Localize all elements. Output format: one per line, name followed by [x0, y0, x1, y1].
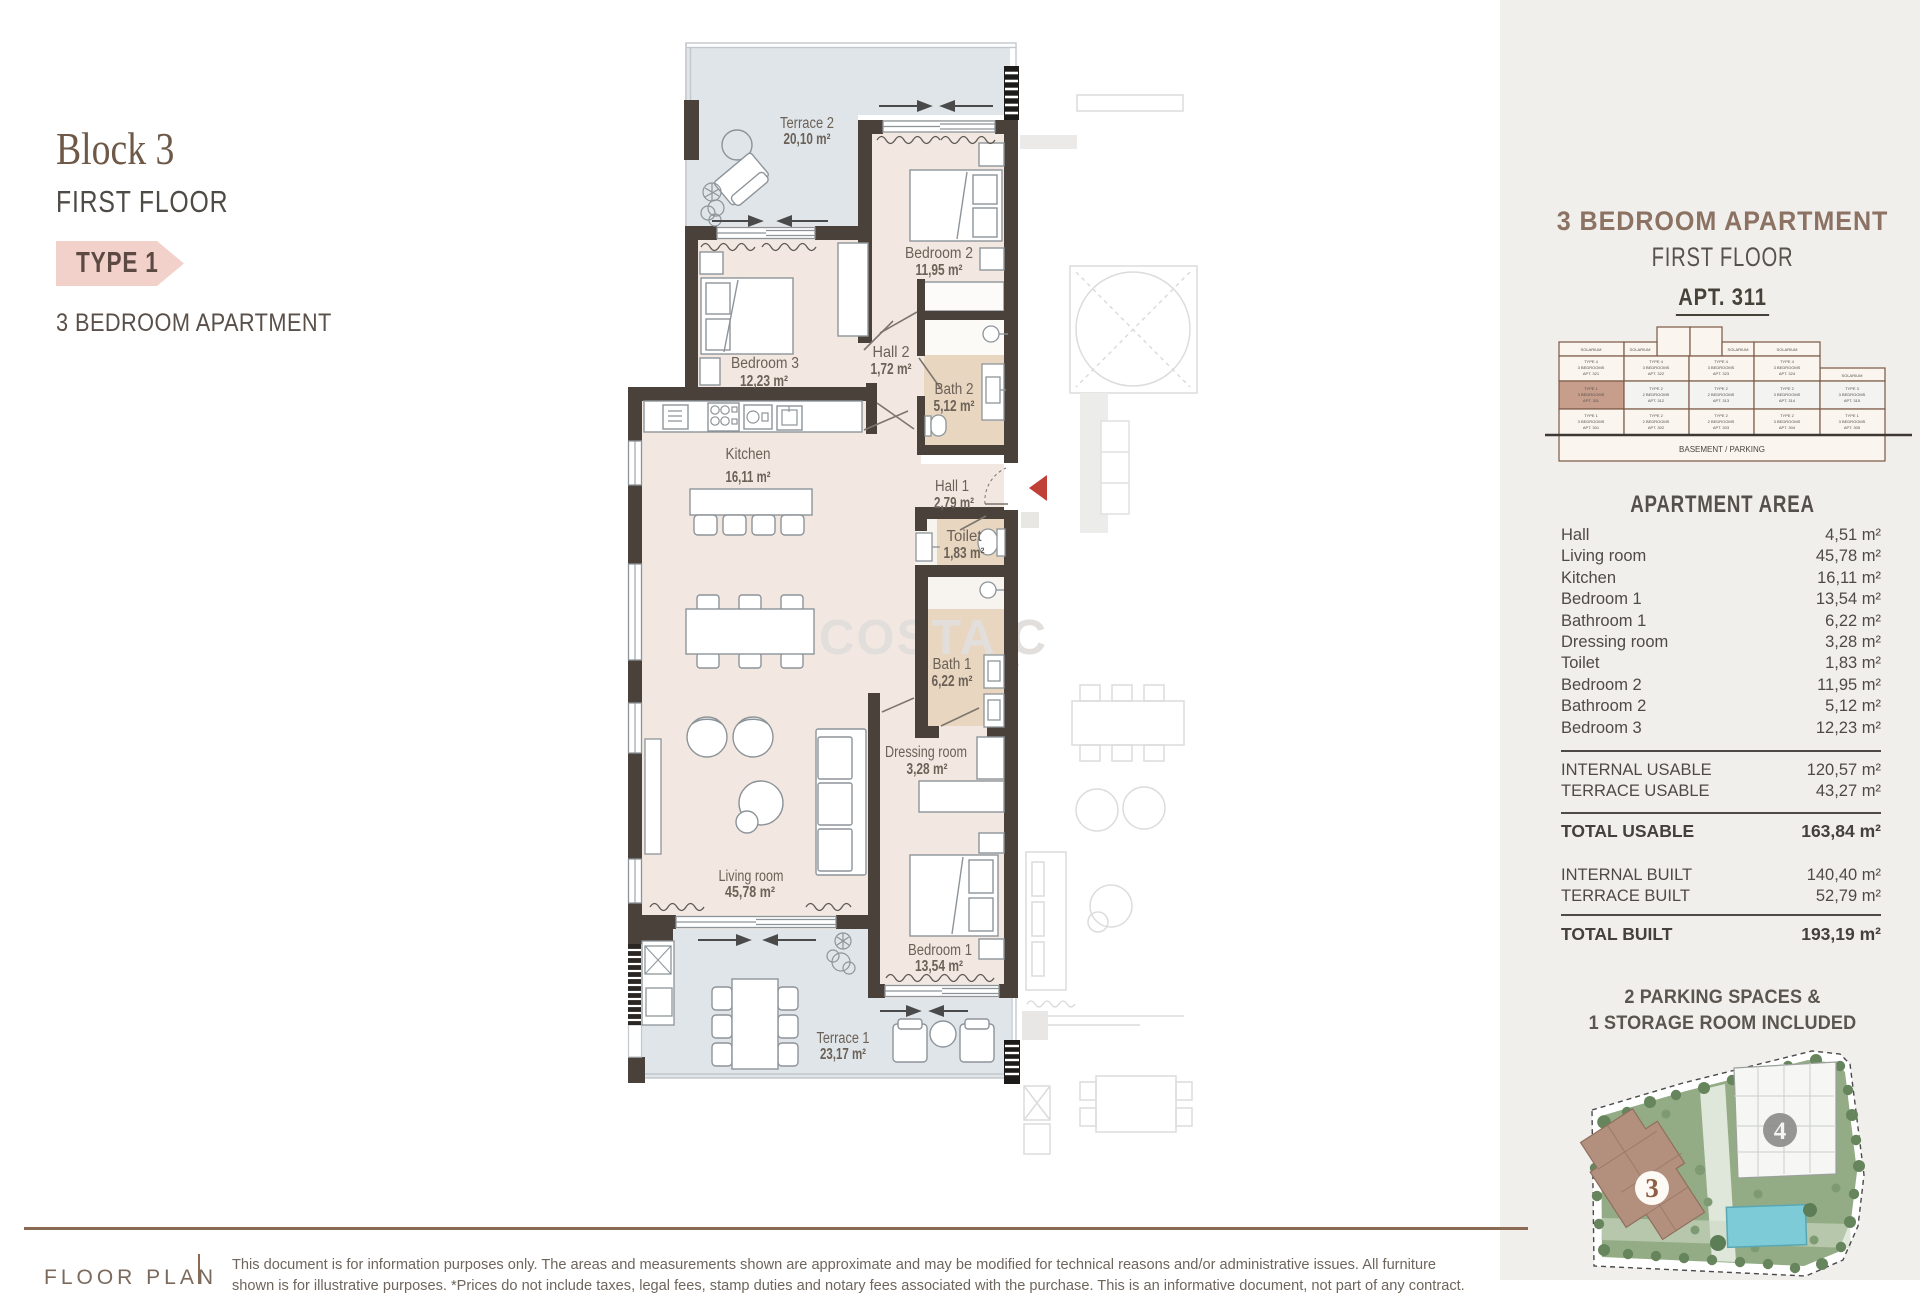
- svg-text:APT. 321: APT. 321: [1583, 371, 1600, 376]
- svg-text:3 BEDROOMS: 3 BEDROOMS: [1839, 419, 1866, 424]
- svg-text:APT. 314: APT. 314: [1779, 398, 1796, 403]
- svg-text:4: 4: [1774, 1118, 1787, 1145]
- svg-text:APT. 323: APT. 323: [1713, 371, 1730, 376]
- svg-text:Bedroom 2: Bedroom 2: [905, 245, 973, 262]
- svg-text:SOLARIUM: SOLARIUM: [1630, 347, 1651, 352]
- svg-text:2,79 m²: 2,79 m²: [934, 495, 974, 512]
- svg-text:BASEMENT / PARKING: BASEMENT / PARKING: [1679, 445, 1765, 454]
- svg-text:3 BEDROOMS: 3 BEDROOMS: [1774, 392, 1801, 397]
- svg-text:Terrace 1: Terrace 1: [817, 1030, 870, 1047]
- svg-text:23,17 m²: 23,17 m²: [820, 1046, 866, 1063]
- svg-text:6,22 m²: 6,22 m²: [932, 673, 973, 690]
- svg-text:16,11 m²: 16,11 m²: [726, 469, 771, 486]
- svg-text:5,12 m²: 5,12 m²: [934, 398, 975, 415]
- svg-text:11,95 m²: 11,95 m²: [916, 262, 963, 279]
- svg-text:TYPE 2: TYPE 2: [1780, 413, 1795, 418]
- svg-text:TYPE 1: TYPE 1: [1584, 413, 1599, 418]
- svg-text:TYPE 2: TYPE 2: [1649, 386, 1664, 391]
- svg-text:3 BEDROOMS: 3 BEDROOMS: [1774, 419, 1801, 424]
- svg-text:Terrace 2: Terrace 2: [780, 115, 834, 132]
- svg-text:Living room: Living room: [719, 868, 784, 885]
- svg-text:TYPE 2: TYPE 2: [1714, 413, 1729, 418]
- svg-text:TYPE 2: TYPE 2: [1649, 413, 1664, 418]
- svg-text:1,83 m²: 1,83 m²: [944, 545, 985, 562]
- svg-text:3 BEDROOMS: 3 BEDROOMS: [1578, 419, 1605, 424]
- svg-text:3 BEDROOMS: 3 BEDROOMS: [1578, 392, 1605, 397]
- svg-text:SOLARIUM: SOLARIUM: [1728, 347, 1749, 352]
- svg-text:Bath 2: Bath 2: [935, 381, 974, 398]
- svg-text:APT. 313: APT. 313: [1713, 398, 1730, 403]
- svg-text:Kitchen: Kitchen: [726, 446, 771, 463]
- svg-text:Hall 1: Hall 1: [935, 478, 969, 495]
- svg-text:Bedroom 3: Bedroom 3: [731, 355, 799, 372]
- svg-text:SOLARIUM: SOLARIUM: [1777, 347, 1798, 352]
- svg-text:TYPE 2: TYPE 2: [1780, 386, 1795, 391]
- svg-text:APT. 311: APT. 311: [1583, 398, 1600, 403]
- svg-text:13,54 m²: 13,54 m²: [915, 958, 963, 975]
- svg-text:TYPE 2: TYPE 2: [1714, 386, 1729, 391]
- svg-text:APT. 302: APT. 302: [1648, 425, 1665, 430]
- svg-text:Toilet: Toilet: [947, 528, 983, 545]
- svg-text:Bedroom 1: Bedroom 1: [908, 942, 972, 959]
- svg-text:TYPE 3: TYPE 3: [1845, 386, 1860, 391]
- svg-text:3 BEDROOMS: 3 BEDROOMS: [1708, 365, 1735, 370]
- svg-text:Dressing room: Dressing room: [885, 744, 967, 761]
- svg-text:TYPE 4: TYPE 4: [1714, 359, 1729, 364]
- svg-text:3 BEDROOMS: 3 BEDROOMS: [1774, 365, 1801, 370]
- svg-text:2 BEDROOMS: 2 BEDROOMS: [1708, 392, 1735, 397]
- svg-text:2 BEDROOMS: 2 BEDROOMS: [1643, 392, 1670, 397]
- svg-text:3 BEDROOMS: 3 BEDROOMS: [1839, 392, 1866, 397]
- svg-text:APT. 324: APT. 324: [1779, 371, 1796, 376]
- svg-text:APT. 312: APT. 312: [1648, 398, 1665, 403]
- svg-text:APT. 303: APT. 303: [1713, 425, 1730, 430]
- svg-text:3 BEDROOMS: 3 BEDROOMS: [1578, 365, 1605, 370]
- svg-text:Hall 2: Hall 2: [873, 344, 910, 361]
- svg-text:APT. 304: APT. 304: [1779, 425, 1796, 430]
- svg-text:2 BEDROOMS: 2 BEDROOMS: [1708, 419, 1735, 424]
- svg-text:APT. 305: APT. 305: [1844, 425, 1861, 430]
- svg-text:12,23 m²: 12,23 m²: [740, 373, 788, 390]
- svg-text:TYPE 1: TYPE 1: [1584, 386, 1599, 391]
- svg-text:3,28 m²: 3,28 m²: [907, 761, 948, 778]
- svg-text:TYPE 4: TYPE 4: [1584, 359, 1599, 364]
- svg-text:Bath 1: Bath 1: [933, 656, 972, 673]
- svg-text:APT. 315: APT. 315: [1844, 398, 1861, 403]
- svg-text:45,78 m²: 45,78 m²: [725, 884, 775, 901]
- svg-text:20,10 m²: 20,10 m²: [784, 131, 831, 148]
- svg-text:APT. 322: APT. 322: [1648, 371, 1665, 376]
- svg-text:2 BEDROOMS: 2 BEDROOMS: [1643, 419, 1670, 424]
- svg-text:TYPE 4: TYPE 4: [1649, 359, 1664, 364]
- svg-text:TYPE 1: TYPE 1: [1845, 413, 1860, 418]
- svg-text:SOLARIUM: SOLARIUM: [1842, 373, 1863, 378]
- svg-text:TYPE 4: TYPE 4: [1780, 359, 1795, 364]
- svg-text:SOLARIUM: SOLARIUM: [1581, 347, 1602, 352]
- svg-text:3 BEDROOMS: 3 BEDROOMS: [1643, 365, 1670, 370]
- svg-text:1,72 m²: 1,72 m²: [871, 361, 912, 378]
- svg-text:APT. 301: APT. 301: [1583, 425, 1600, 430]
- svg-text:3: 3: [1645, 1173, 1659, 1203]
